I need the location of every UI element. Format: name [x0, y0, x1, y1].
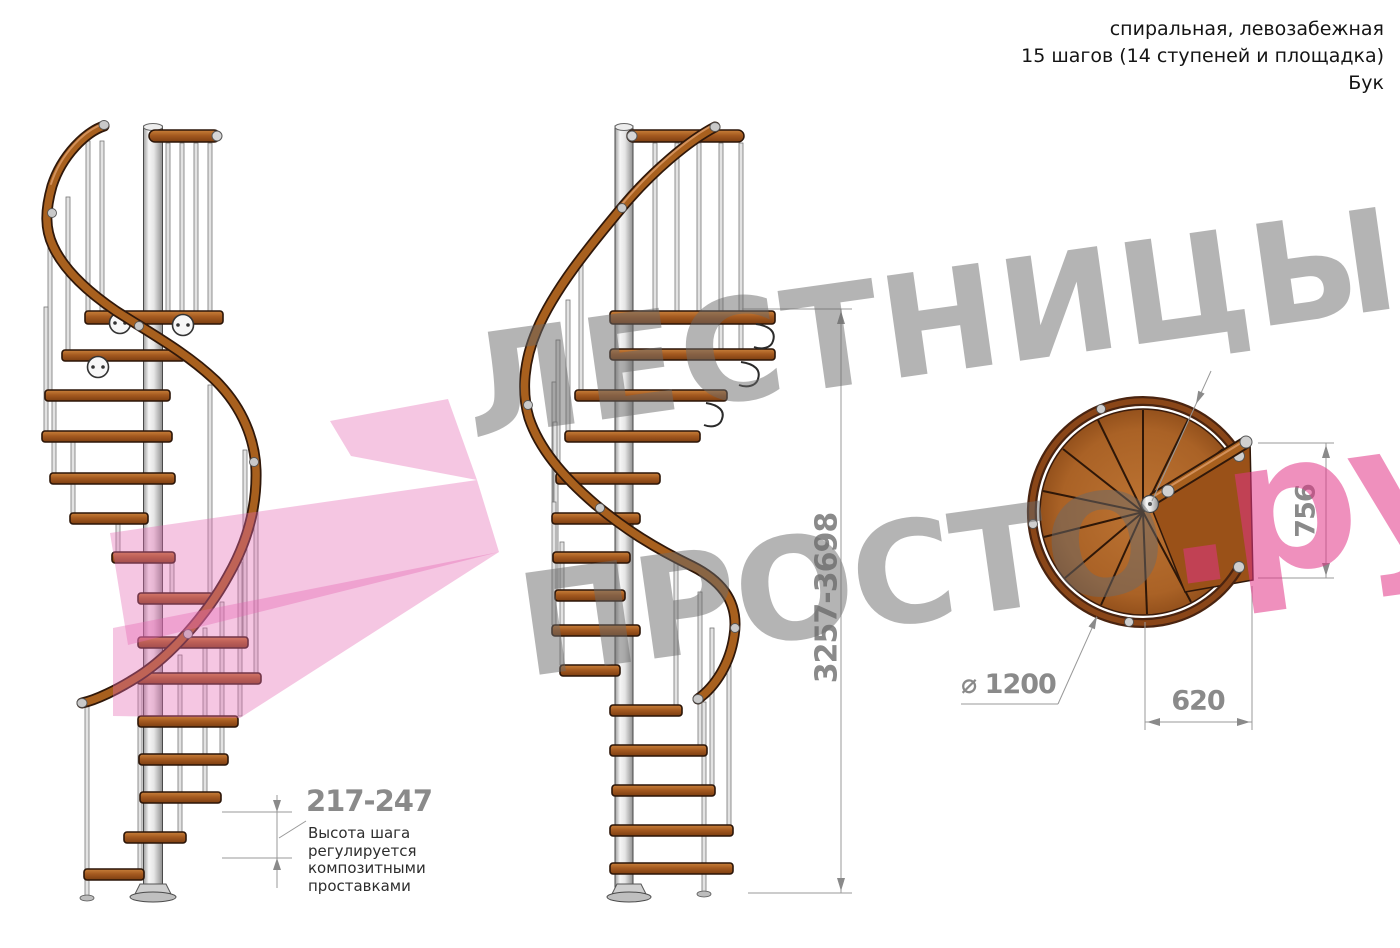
- total-height-dimension: 3257-3698: [810, 513, 845, 683]
- rail-ferrule: [1162, 485, 1174, 497]
- platform-width-dimension: 620: [1171, 686, 1224, 717]
- left-side-view: [42, 121, 261, 903]
- center-column: [144, 126, 163, 893]
- rail-end-cap: [212, 131, 222, 141]
- plan-view: [1029, 401, 1254, 627]
- stair-material: Бук: [1021, 70, 1384, 97]
- technical-drawing: [0, 0, 1400, 948]
- baluster-foot: [697, 891, 711, 897]
- step-height-dimension: 217-247: [306, 784, 432, 818]
- rail-end-cap: [1240, 436, 1252, 448]
- column-cap: [615, 124, 633, 131]
- rail-end-cap: [627, 131, 637, 141]
- base-flange: [130, 892, 176, 902]
- pink-arrow-watermark: [110, 399, 499, 718]
- base-flange: [607, 892, 651, 902]
- drawing-sheet: спиральная, левозабежная 15 шагов (14 ст…: [0, 0, 1400, 948]
- center-column: [615, 126, 633, 893]
- front-side-view: [524, 123, 776, 903]
- step-height-note: Высота шага регулируется композитными пр…: [308, 825, 426, 895]
- stair-steps: 15 шагов (14 ступеней и площадка): [1021, 43, 1384, 70]
- diameter-dimension: ⌀ 1200: [961, 669, 1056, 700]
- baluster-foot: [80, 895, 94, 901]
- platform-depth-dimension: 756: [1291, 484, 1322, 537]
- platform-top-rail: [149, 130, 220, 142]
- title-block: спиральная, левозабежная 15 шагов (14 ст…: [1021, 16, 1384, 97]
- treads: [552, 311, 775, 874]
- stair-type: спиральная, левозабежная: [1021, 16, 1384, 43]
